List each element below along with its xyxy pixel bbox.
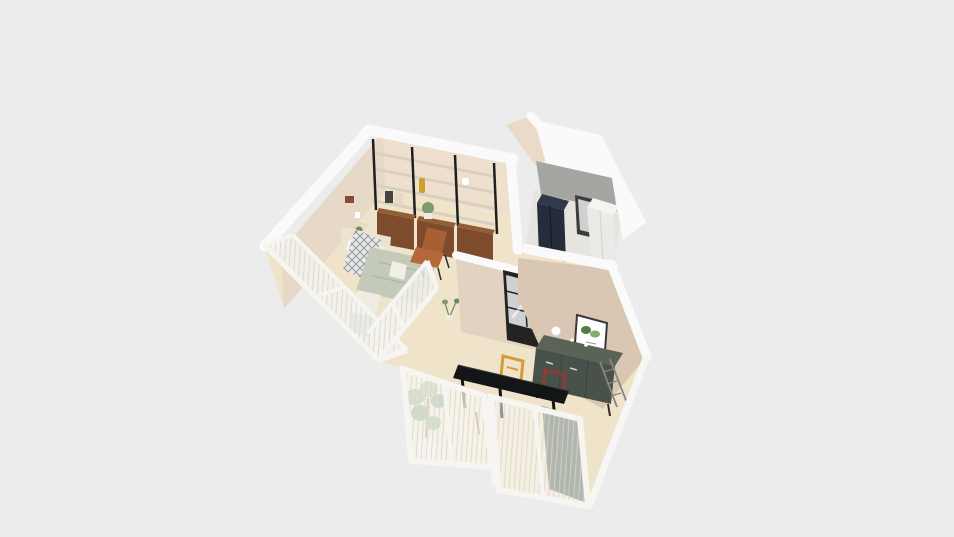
utility-cabinet[interactable]: [587, 198, 619, 264]
shelf-plant: [422, 202, 434, 214]
shelf-plant-pot: [424, 213, 432, 219]
white-decor: [355, 212, 360, 218]
print-leaf-dark: [581, 326, 591, 334]
divider-wall-cap: [511, 162, 518, 250]
sprig-pot: [446, 315, 452, 320]
mustard-vase: [419, 178, 425, 193]
leaning-frame-1: [385, 191, 393, 203]
leaning-frame-2: [395, 193, 403, 204]
floorplan-viewport: [0, 0, 954, 537]
counter-dish-2: [584, 343, 588, 347]
print-leaf-light: [590, 331, 600, 338]
kettle: [552, 327, 561, 336]
counter-dish-1: [570, 338, 574, 342]
white-bird-decor: [462, 178, 469, 185]
book-stack: [345, 196, 354, 203]
sprig-leaf-1: [442, 300, 448, 305]
floorplan-canvas[interactable]: [0, 0, 954, 537]
